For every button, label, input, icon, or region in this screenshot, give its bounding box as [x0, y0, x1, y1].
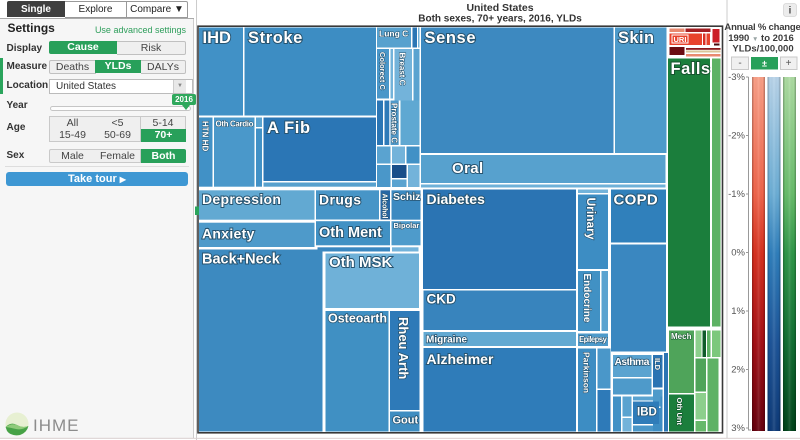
svg-text:Both sexes, 70+ years, 2016, Y: Both sexes, 70+ years, 2016, YLDs	[418, 14, 582, 25]
svg-text:0%: 0%	[731, 248, 745, 259]
svg-text:Annual % change: Annual % change	[724, 22, 800, 33]
svg-text:Gout: Gout	[393, 415, 419, 427]
svg-text:URI: URI	[674, 35, 687, 44]
svg-text:i: i	[789, 5, 792, 17]
svg-text:Colorect C: Colorect C	[378, 52, 387, 91]
svg-text:-2%: -2%	[728, 131, 745, 142]
svg-text:-: -	[738, 58, 741, 69]
svg-text:A Fib: A Fib	[267, 119, 311, 137]
svg-text:Anxiety: Anxiety	[202, 226, 255, 242]
svg-text:-1%: -1%	[728, 189, 745, 200]
svg-text:Parkinson: Parkinson	[582, 352, 592, 393]
svg-text:Urinary: Urinary	[584, 198, 598, 240]
svg-text:Prostate C: Prostate C	[389, 103, 398, 143]
svg-text:Oth Ment: Oth Ment	[319, 225, 382, 241]
svg-text:Oral: Oral	[452, 160, 484, 177]
svg-text:Sense: Sense	[425, 29, 477, 47]
svg-text:Rheu Arth: Rheu Arth	[396, 317, 411, 379]
svg-text:Asthma: Asthma	[615, 356, 650, 368]
svg-text:Drugs: Drugs	[319, 192, 361, 208]
svg-text:CKD: CKD	[427, 292, 456, 307]
svg-text:2%: 2%	[731, 365, 745, 376]
svg-text:Oth MSK: Oth MSK	[329, 254, 392, 271]
svg-text:1990 ▼ to 2016: 1990 ▼ to 2016	[728, 33, 794, 44]
svg-text:Oth Cardio: Oth Cardio	[216, 120, 254, 129]
svg-text:+: +	[786, 58, 792, 69]
svg-text:Osteoarth: Osteoarth	[328, 312, 387, 326]
svg-text:Mech: Mech	[671, 332, 692, 341]
svg-text:IHD: IHD	[203, 29, 232, 47]
svg-text:-3%: -3%	[728, 72, 745, 83]
svg-text:Stroke: Stroke	[248, 29, 303, 47]
svg-text:Bipolar: Bipolar	[394, 221, 420, 230]
svg-text:IBD: IBD	[637, 407, 657, 419]
svg-text:Diabetes: Diabetes	[427, 191, 486, 207]
svg-text:Back+Neck: Back+Neck	[202, 252, 281, 268]
svg-text:Schiz: Schiz	[393, 191, 420, 203]
svg-text:ILD: ILD	[653, 358, 662, 371]
svg-text:Epilepsy: Epilepsy	[579, 335, 608, 344]
svg-text:HTN HD: HTN HD	[201, 121, 210, 151]
svg-text:3%: 3%	[731, 423, 745, 434]
svg-text:1%: 1%	[731, 306, 745, 317]
svg-text:Alzheimer: Alzheimer	[427, 351, 494, 367]
svg-text:Skin: Skin	[618, 29, 654, 47]
svg-text:±: ±	[762, 59, 767, 69]
svg-text:YLDs/100,000: YLDs/100,000	[732, 44, 793, 55]
svg-text:Migraine: Migraine	[426, 335, 468, 346]
svg-text:Depression: Depression	[202, 191, 281, 207]
svg-text:COPD: COPD	[614, 192, 659, 209]
svg-text:Breast C: Breast C	[398, 53, 407, 86]
svg-text:Falls: Falls	[671, 60, 711, 78]
svg-text:United States: United States	[466, 2, 533, 14]
svg-text:Oth Unt: Oth Unt	[675, 398, 684, 426]
svg-text:Lung C: Lung C	[379, 29, 408, 39]
svg-text:Alcohol: Alcohol	[381, 194, 388, 219]
svg-text:Endocrine: Endocrine	[581, 274, 592, 323]
